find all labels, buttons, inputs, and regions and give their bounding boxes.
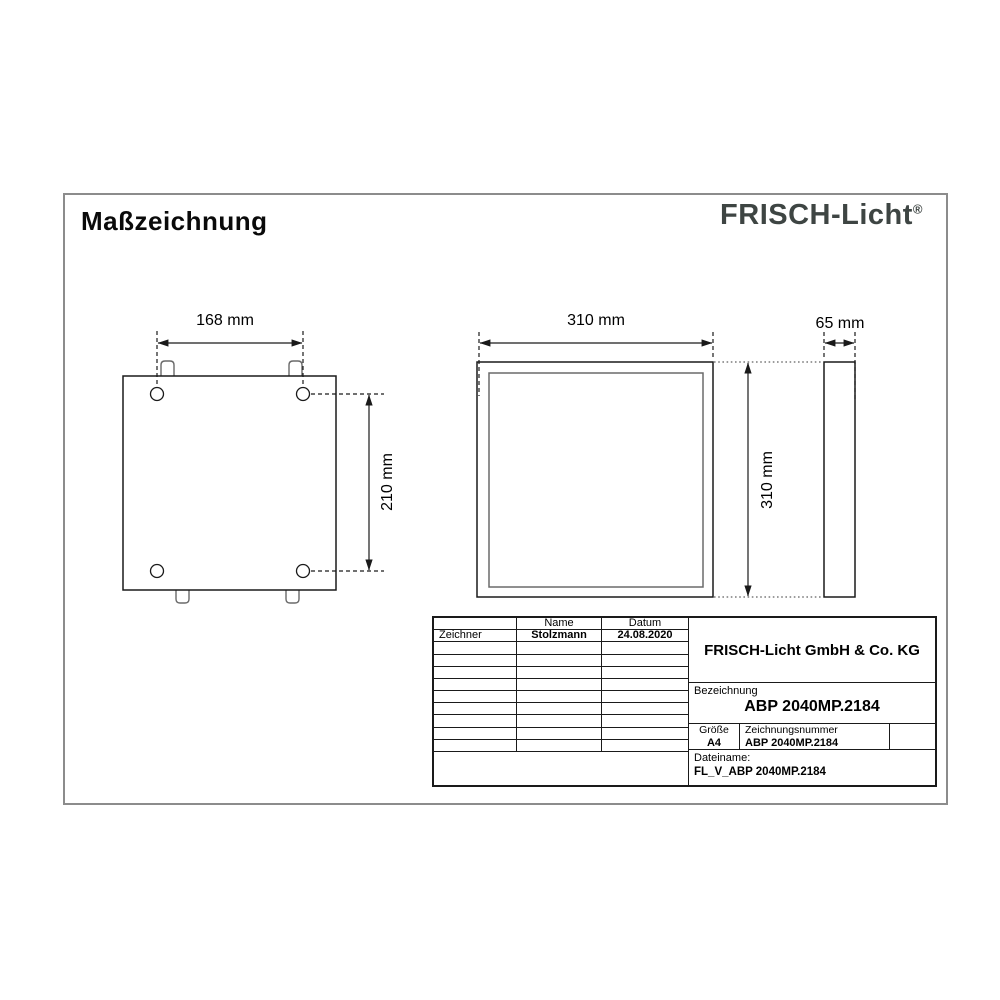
drawing-number-label: Zeichnungsnummer xyxy=(745,724,889,737)
table-cell xyxy=(602,642,689,654)
table-cell xyxy=(434,740,517,752)
drawing-number-value: ABP 2040MP.2184 xyxy=(745,737,889,749)
table-cell xyxy=(517,691,602,703)
table-cell xyxy=(434,728,517,740)
side-view: 65 mm xyxy=(816,315,865,597)
size-label: Größe xyxy=(699,724,729,737)
dim-168-label: 168 mm xyxy=(196,312,254,329)
table-cell xyxy=(602,703,689,715)
company-name: FRISCH-Licht GmbH & Co. KG xyxy=(689,618,935,682)
table-cell xyxy=(517,715,602,727)
table-cell xyxy=(517,740,602,752)
designation-value: ABP 2040MP.2184 xyxy=(689,698,935,716)
table-cell xyxy=(602,740,689,752)
drawing-number-cell: Zeichnungsnummer ABP 2040MP.2184 xyxy=(740,724,890,749)
table-cell xyxy=(434,667,517,679)
filename-label: Dateiname: xyxy=(694,752,935,765)
sheet-size-cell: Größe A4 xyxy=(689,724,740,749)
title-block: Name Datum Zeichner Stolzmann 24.08.2020… xyxy=(432,616,937,787)
table-cell xyxy=(517,728,602,740)
side-view-body xyxy=(824,362,855,597)
back-view: 168 mm 210 mm xyxy=(123,312,396,603)
row-label-zeichner: Zeichner xyxy=(434,630,517,642)
table-cell xyxy=(602,655,689,667)
table-notes-cell xyxy=(434,752,689,785)
column-header-name: Name xyxy=(517,618,602,630)
table-cell xyxy=(602,691,689,703)
table-cell xyxy=(434,618,517,630)
table-cell xyxy=(517,667,602,679)
table-cell xyxy=(517,703,602,715)
column-header-date: Datum xyxy=(602,618,689,630)
designation-section: Bezeichnung ABP 2040MP.2184 xyxy=(689,682,935,723)
dim-210-label: 210 mm xyxy=(379,453,396,511)
table-cell xyxy=(602,715,689,727)
table-cell xyxy=(434,642,517,654)
spare-cell xyxy=(890,724,935,749)
drawing-sheet: Maßzeichnung FRISCH-Licht® xyxy=(0,0,1000,1000)
title-block-revision-table: Name Datum Zeichner Stolzmann 24.08.2020 xyxy=(434,618,689,785)
drafter-name: Stolzmann xyxy=(517,630,602,642)
dim-65-label: 65 mm xyxy=(816,315,865,332)
table-cell xyxy=(434,679,517,691)
dimension-drawing: 168 mm 210 mm 310 mm xyxy=(0,0,1000,1000)
back-view-housing xyxy=(123,376,336,590)
table-cell xyxy=(434,691,517,703)
designation-label: Bezeichnung xyxy=(689,683,935,697)
table-cell xyxy=(517,642,602,654)
table-cell xyxy=(602,679,689,691)
table-cell xyxy=(517,679,602,691)
drafting-date: 24.08.2020 xyxy=(602,630,689,642)
table-cell xyxy=(434,655,517,667)
table-cell xyxy=(602,728,689,740)
dim-310h-label: 310 mm xyxy=(759,451,776,509)
front-view: 310 mm 310 mm xyxy=(477,312,823,597)
table-cell xyxy=(434,703,517,715)
front-view-diffuser xyxy=(489,373,703,587)
size-number-row: Größe A4 Zeichnungsnummer ABP 2040MP.218… xyxy=(689,723,935,749)
table-cell xyxy=(517,655,602,667)
size-value: A4 xyxy=(707,737,721,749)
table-cell xyxy=(602,667,689,679)
filename-section: Dateiname: FL_V_ABP 2040MP.2184 xyxy=(689,749,935,785)
title-block-info: FRISCH-Licht GmbH & Co. KG Bezeichnung A… xyxy=(689,618,935,785)
dim-310w-label: 310 mm xyxy=(567,312,625,329)
filename-value: FL_V_ABP 2040MP.2184 xyxy=(694,765,935,779)
table-cell xyxy=(434,715,517,727)
